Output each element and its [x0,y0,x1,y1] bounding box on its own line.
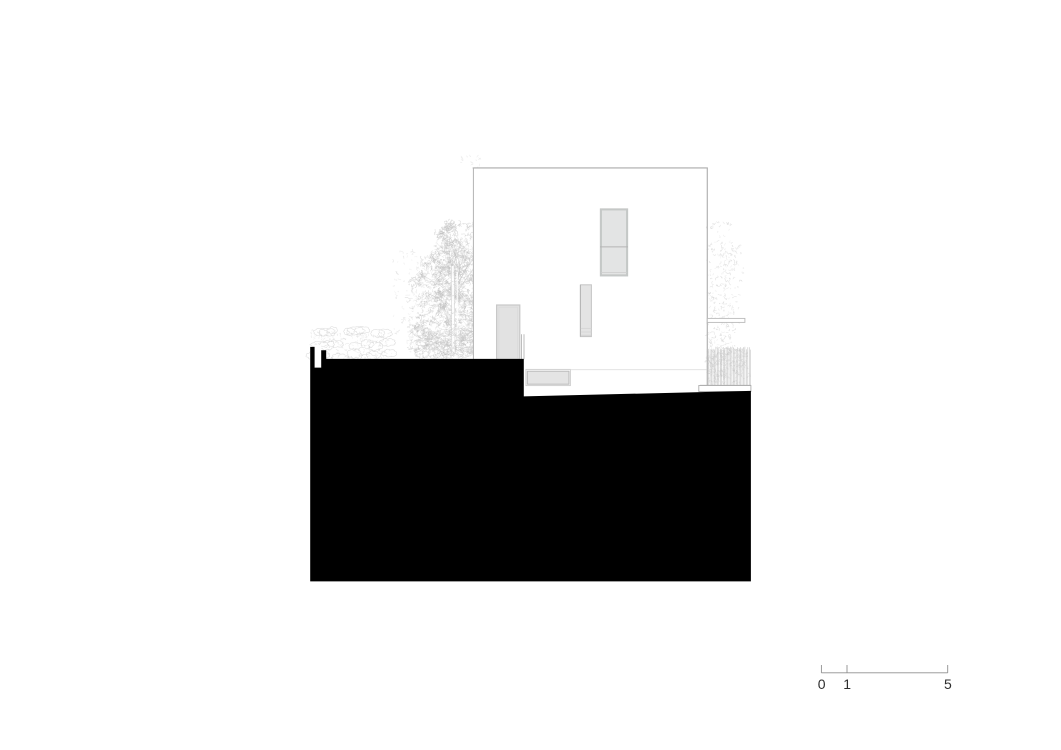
svg-text:1: 1 [843,676,851,692]
svg-text:5: 5 [944,676,952,692]
svg-text:0: 0 [818,676,826,692]
